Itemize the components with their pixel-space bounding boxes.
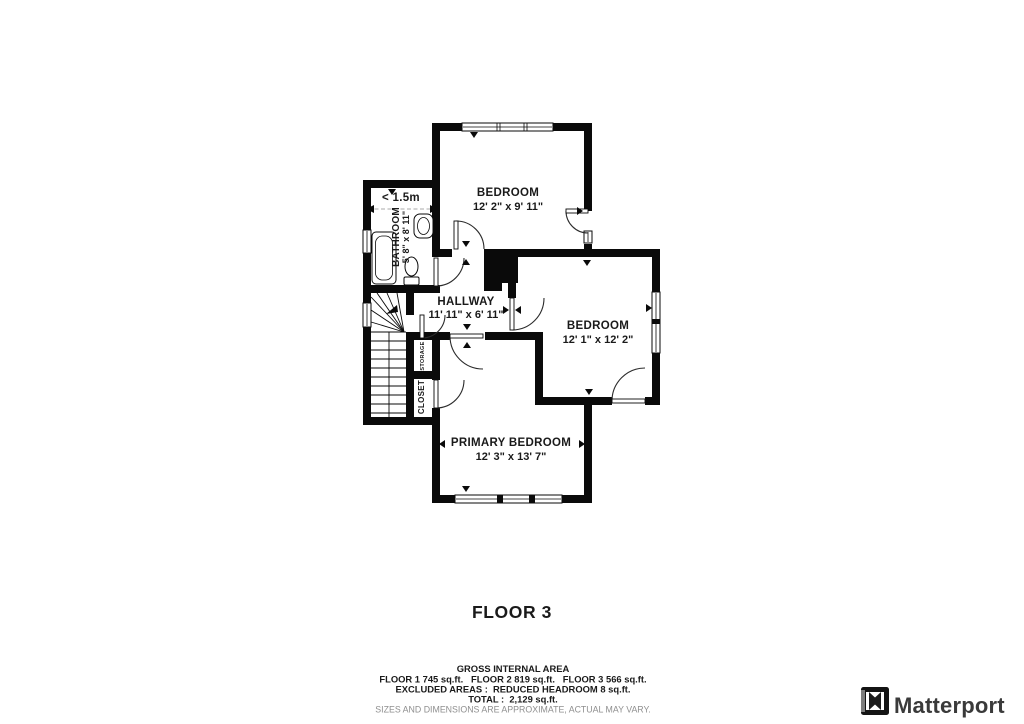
- marker-triangle: [585, 389, 593, 395]
- floorplan-canvas: BEDROOM 12' 2" x 9' 11" BEDROOM 12' 1" x…: [0, 0, 1024, 724]
- door-bedroom2-hall: [510, 298, 544, 330]
- footer-title: GROSS INTERNAL AREA: [457, 663, 570, 674]
- floorplan-page: BEDROOM 12' 2" x 9' 11" BEDROOM 12' 1" x…: [0, 0, 1024, 724]
- stairs-winders: [371, 293, 404, 332]
- room-label-bedroom2: BEDROOM: [567, 320, 629, 332]
- room-label-primary-bedroom: PRIMARY BEDROOM: [451, 437, 571, 449]
- footer-total: TOTAL : 2,129 sq.ft.: [468, 694, 558, 705]
- window-stairs-left: [363, 303, 371, 327]
- marker-triangle: [577, 207, 583, 215]
- room-label-bedroom1: BEDROOM: [477, 187, 539, 199]
- brand-logo: Matterport: [861, 687, 1005, 718]
- window-primary-bottom: [455, 495, 562, 503]
- window-bath-left: [363, 230, 371, 253]
- door-bedroom1-hall: [454, 221, 484, 249]
- matterport-wordmark: Matterport: [894, 693, 1005, 718]
- room-label-hallway: HALLWAY: [437, 296, 494, 308]
- stairs: [371, 293, 406, 417]
- door-primary: [450, 334, 483, 369]
- room-dims-bathroom: 5' 8" x 8' 11": [401, 211, 411, 263]
- marker-triangle: [503, 306, 509, 314]
- room-label-closet: CLOSET: [417, 380, 426, 414]
- door-closet: [434, 380, 464, 408]
- window-bedroom2-right: [652, 292, 660, 353]
- room-dims-bedroom1: 12' 2" x 9' 11": [473, 201, 543, 213]
- headroom-label: < 1.5m: [382, 192, 420, 204]
- door-bedroom2-bottom: [612, 368, 645, 403]
- marker-triangle: [583, 260, 591, 266]
- door-bathroom: [434, 258, 464, 286]
- window-bedroom1-top: [462, 123, 553, 131]
- marker-triangle: [463, 342, 471, 348]
- marker-triangle: [462, 241, 470, 247]
- footer: GROSS INTERNAL AREA FLOOR 1 745 sq.ft. F…: [375, 663, 650, 715]
- room-dims-hallway: 11' 11" x 6' 11": [428, 309, 503, 321]
- marker-triangle: [646, 304, 652, 312]
- matterport-icon: [861, 687, 889, 715]
- footer-disclaimer: SIZES AND DIMENSIONS ARE APPROXIMATE, AC…: [375, 705, 650, 715]
- sink: [414, 214, 433, 238]
- marker-triangle: [462, 486, 470, 492]
- floor-title: FLOOR 3: [472, 602, 552, 622]
- stairs-direction-arrow: [386, 305, 398, 314]
- room-dims-bedroom2: 12' 1" x 12' 2": [563, 334, 634, 346]
- marker-triangle: [470, 132, 478, 138]
- room-dims-primary-bedroom: 12' 3" x 13' 7": [476, 451, 547, 463]
- marker-triangle: [463, 324, 471, 330]
- marker-triangle: [515, 306, 521, 314]
- room-label-storage: STORAGE: [420, 341, 426, 370]
